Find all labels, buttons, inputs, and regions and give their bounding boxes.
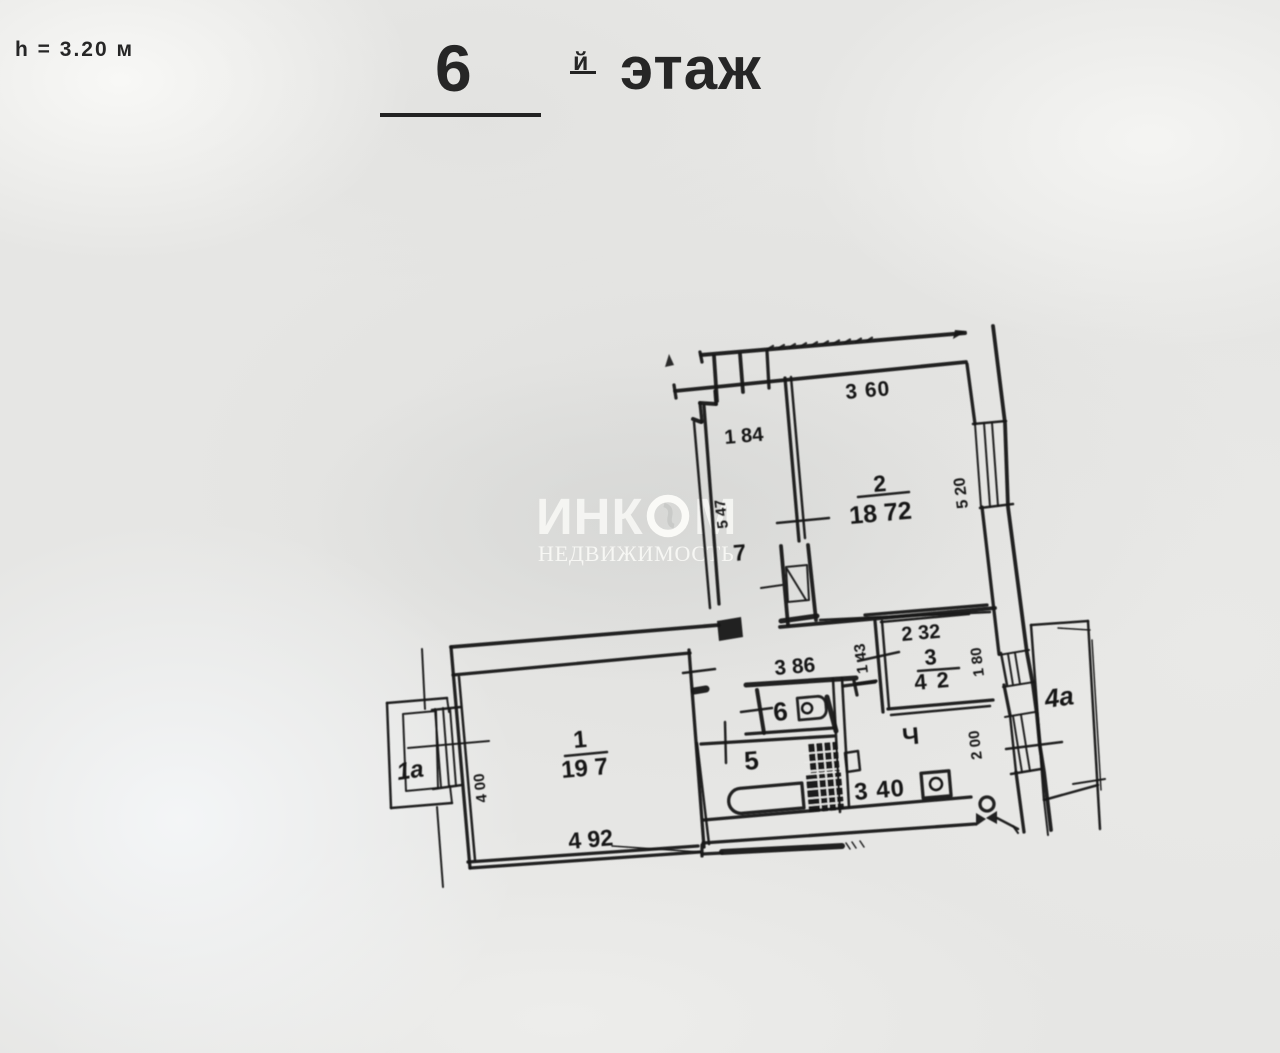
svg-text:5 20: 5 20 bbox=[951, 477, 972, 510]
svg-text:2 00: 2 00 bbox=[966, 730, 986, 761]
svg-text:3: 3 bbox=[923, 644, 937, 670]
svg-text:4 92: 4 92 bbox=[567, 824, 614, 854]
svg-text:3 40: 3 40 bbox=[853, 775, 906, 806]
svg-text:1а: 1а bbox=[395, 755, 425, 785]
svg-text:5: 5 bbox=[743, 745, 760, 776]
svg-text:ИНК: ИНК bbox=[536, 488, 644, 545]
svg-text:6: 6 bbox=[772, 696, 789, 727]
svg-text:3 60: 3 60 bbox=[844, 377, 891, 404]
svg-text:3 86: 3 86 bbox=[773, 654, 816, 680]
svg-text:М: М bbox=[694, 488, 736, 545]
svg-text:7: 7 bbox=[732, 539, 747, 566]
svg-text:4а: 4а bbox=[1042, 680, 1076, 714]
svg-text:4 00: 4 00 bbox=[471, 773, 491, 804]
svg-text:2 32: 2 32 bbox=[901, 621, 942, 646]
svg-text:18 72: 18 72 bbox=[848, 497, 913, 530]
svg-text:1 80: 1 80 bbox=[968, 647, 988, 678]
svg-text:Ч: Ч bbox=[901, 723, 920, 751]
svg-text:НЕДВИЖИМОСТЬ: НЕДВИЖИМОСТЬ bbox=[538, 541, 735, 566]
svg-text:4 2: 4 2 bbox=[913, 667, 952, 695]
svg-text:1 84: 1 84 bbox=[724, 424, 766, 449]
svg-text:19 7: 19 7 bbox=[560, 753, 609, 784]
svg-text:5 47: 5 47 bbox=[712, 499, 732, 530]
svg-text:2: 2 bbox=[872, 470, 887, 497]
svg-text:1 43: 1 43 bbox=[851, 642, 872, 674]
svg-text:1: 1 bbox=[572, 726, 588, 754]
